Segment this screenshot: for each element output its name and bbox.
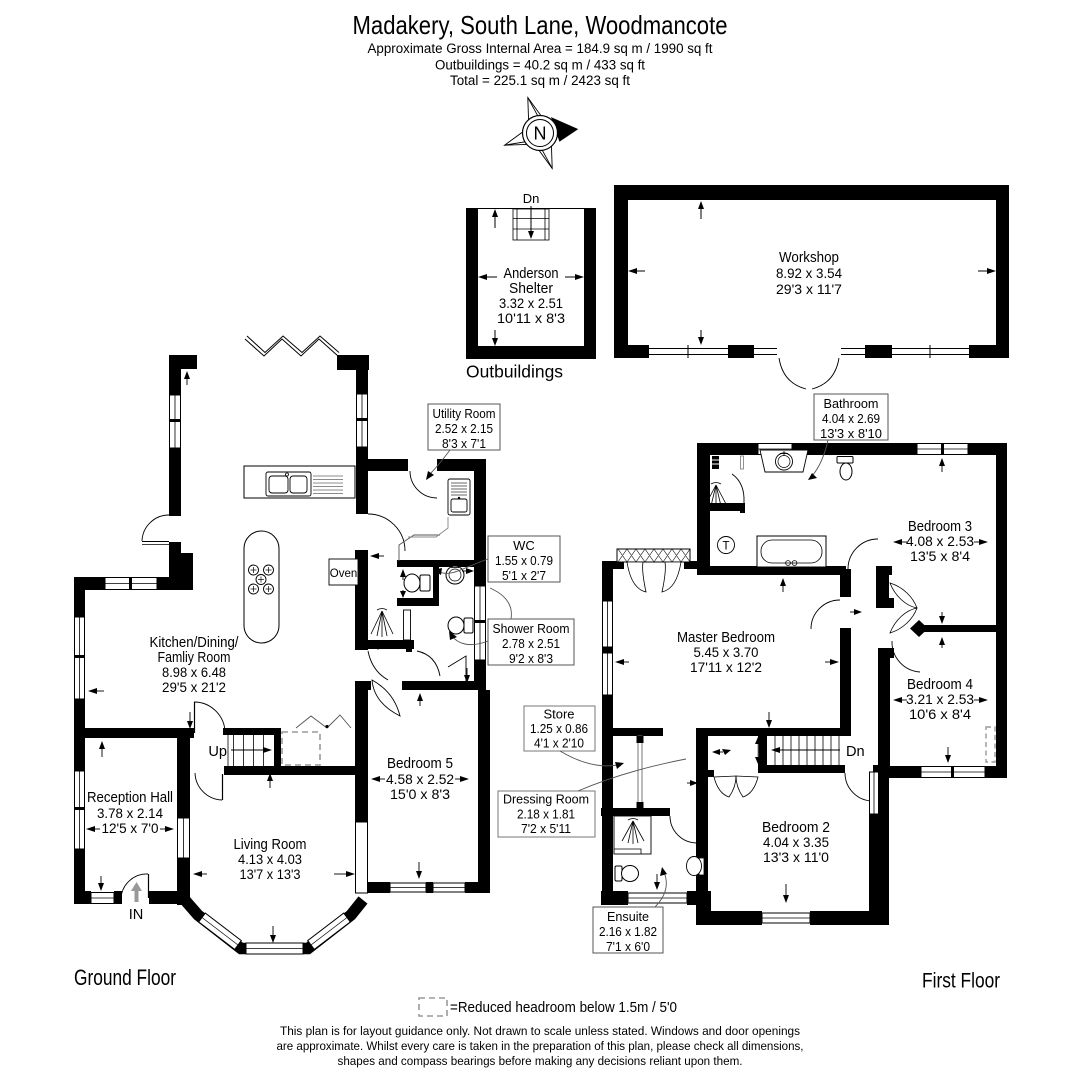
svg-text:2.52 x 2.15: 2.52 x 2.15 bbox=[435, 421, 493, 436]
svg-text:T: T bbox=[722, 541, 729, 553]
svg-text:Bedroom 4: Bedroom 4 bbox=[907, 677, 973, 693]
svg-text:Workshop: Workshop bbox=[779, 250, 839, 266]
svg-text:Total = 225.1 sq m / 2423 sq f: Total = 225.1 sq m / 2423 sq ft bbox=[450, 73, 630, 88]
svg-text:5'1 x 2'7: 5'1 x 2'7 bbox=[502, 568, 546, 583]
svg-text:Kitchen/Dining/: Kitchen/Dining/ bbox=[150, 635, 240, 651]
svg-text:2.16 x 1.82: 2.16 x 1.82 bbox=[599, 924, 657, 939]
svg-text:8'3 x 7'1: 8'3 x 7'1 bbox=[442, 436, 486, 451]
svg-text:WC: WC bbox=[513, 538, 535, 553]
svg-text:Bedroom 3: Bedroom 3 bbox=[908, 519, 972, 535]
svg-text:Store: Store bbox=[544, 707, 575, 722]
svg-text:Approximate Gross Internal Are: Approximate Gross Internal Area = 184.9 … bbox=[368, 41, 713, 56]
svg-text:4'1 x 2'10: 4'1 x 2'10 bbox=[534, 736, 584, 751]
svg-text:13'3 x 11'0: 13'3 x 11'0 bbox=[763, 850, 829, 865]
svg-text:First Floor: First Floor bbox=[922, 970, 1000, 993]
svg-text:5.45 x 3.70: 5.45 x 3.70 bbox=[694, 645, 759, 660]
svg-text:2.18 x 1.81: 2.18 x 1.81 bbox=[517, 807, 575, 822]
svg-text:Reception Hall: Reception Hall bbox=[87, 790, 173, 806]
svg-text:=Reduced headroom below 1.5m /: =Reduced headroom below 1.5m / 5'0 bbox=[450, 999, 677, 1016]
svg-text:1.25 x 0.86: 1.25 x 0.86 bbox=[530, 721, 588, 736]
svg-text:4.13 x 4.03: 4.13 x 4.03 bbox=[238, 852, 302, 867]
svg-text:Anderson: Anderson bbox=[504, 266, 559, 282]
svg-text:3.21 x 2.53: 3.21 x 2.53 bbox=[906, 692, 974, 707]
svg-text:Famliy Room: Famliy Room bbox=[158, 650, 231, 666]
svg-text:4.08 x 2.53: 4.08 x 2.53 bbox=[906, 534, 974, 549]
svg-text:13'3 x 8'10: 13'3 x 8'10 bbox=[820, 426, 882, 441]
svg-text:Dn: Dn bbox=[846, 744, 865, 760]
svg-text:8.92 x 3.54: 8.92 x 3.54 bbox=[776, 266, 842, 281]
svg-text:Master Bedroom: Master Bedroom bbox=[677, 630, 775, 646]
svg-text:Ensuite: Ensuite bbox=[607, 909, 649, 924]
svg-text:3.32 x 2.51: 3.32 x 2.51 bbox=[499, 296, 563, 311]
svg-text:12'5 x 7'0: 12'5 x 7'0 bbox=[102, 821, 159, 836]
svg-text:Dressing Room: Dressing Room bbox=[503, 792, 589, 807]
svg-text:2.78 x 2.51: 2.78 x 2.51 bbox=[502, 636, 560, 651]
svg-text:15'0 x 8'3: 15'0 x 8'3 bbox=[390, 787, 450, 802]
svg-text:Oven: Oven bbox=[330, 568, 358, 580]
svg-text:29'3 x 11'7: 29'3 x 11'7 bbox=[776, 282, 842, 297]
svg-text:IN: IN bbox=[129, 907, 144, 923]
svg-text:shapes and compass bearings be: shapes and compass bearings before makin… bbox=[338, 1054, 743, 1068]
svg-text:13'7 x 13'3: 13'7 x 13'3 bbox=[240, 867, 301, 882]
svg-text:4.58 x 2.52: 4.58 x 2.52 bbox=[386, 772, 454, 787]
svg-text:3.78 x 2.14: 3.78 x 2.14 bbox=[97, 806, 163, 821]
svg-text:Outbuildings = 40.2 sq m / 433: Outbuildings = 40.2 sq m / 433 sq ft bbox=[435, 58, 645, 73]
svg-text:10'11 x 8'3: 10'11 x 8'3 bbox=[497, 311, 565, 326]
svg-text:29'5 x 21'2: 29'5 x 21'2 bbox=[162, 680, 226, 695]
svg-text:Living Room: Living Room bbox=[234, 837, 307, 853]
svg-text:are approximate. Whilst every: are approximate. Whilst every care is ta… bbox=[277, 1039, 804, 1053]
svg-text:4.04 x 3.35: 4.04 x 3.35 bbox=[763, 835, 829, 850]
svg-text:Bedroom 2: Bedroom 2 bbox=[762, 820, 830, 836]
svg-text:Shower Room: Shower Room bbox=[493, 621, 570, 636]
svg-text:Ground Floor: Ground Floor bbox=[74, 965, 176, 990]
svg-text:1.55 x 0.79: 1.55 x 0.79 bbox=[495, 553, 553, 568]
svg-text:10'6 x 8'4: 10'6 x 8'4 bbox=[909, 707, 971, 722]
svg-text:8.98 x 6.48: 8.98 x 6.48 bbox=[162, 665, 226, 680]
svg-text:7'1 x 6'0: 7'1 x 6'0 bbox=[606, 939, 650, 954]
svg-text:Bedroom 5: Bedroom 5 bbox=[387, 756, 453, 772]
svg-text:4.04 x 2.69: 4.04 x 2.69 bbox=[822, 411, 880, 426]
svg-text:Up: Up bbox=[208, 744, 227, 760]
svg-text:N: N bbox=[534, 124, 547, 144]
svg-text:17'11 x 12'2: 17'11 x 12'2 bbox=[690, 660, 762, 675]
svg-text:Madakery, South Lane, Woodmanc: Madakery, South Lane, Woodmancote bbox=[353, 10, 728, 40]
svg-text:9'2 x 8'3: 9'2 x 8'3 bbox=[509, 651, 553, 666]
svg-text:Shelter: Shelter bbox=[509, 281, 553, 297]
svg-text:This plan is for layout guidan: This plan is for layout guidance only. N… bbox=[280, 1024, 800, 1038]
svg-text:7'2 x 5'11: 7'2 x 5'11 bbox=[521, 821, 571, 836]
svg-text:Utility Room: Utility Room bbox=[433, 406, 496, 421]
svg-text:13'5 x 8'4: 13'5 x 8'4 bbox=[910, 549, 970, 564]
svg-text:Bathroom: Bathroom bbox=[824, 396, 879, 411]
svg-text:Dn: Dn bbox=[523, 191, 540, 206]
svg-text:Outbuildings: Outbuildings bbox=[466, 362, 563, 382]
